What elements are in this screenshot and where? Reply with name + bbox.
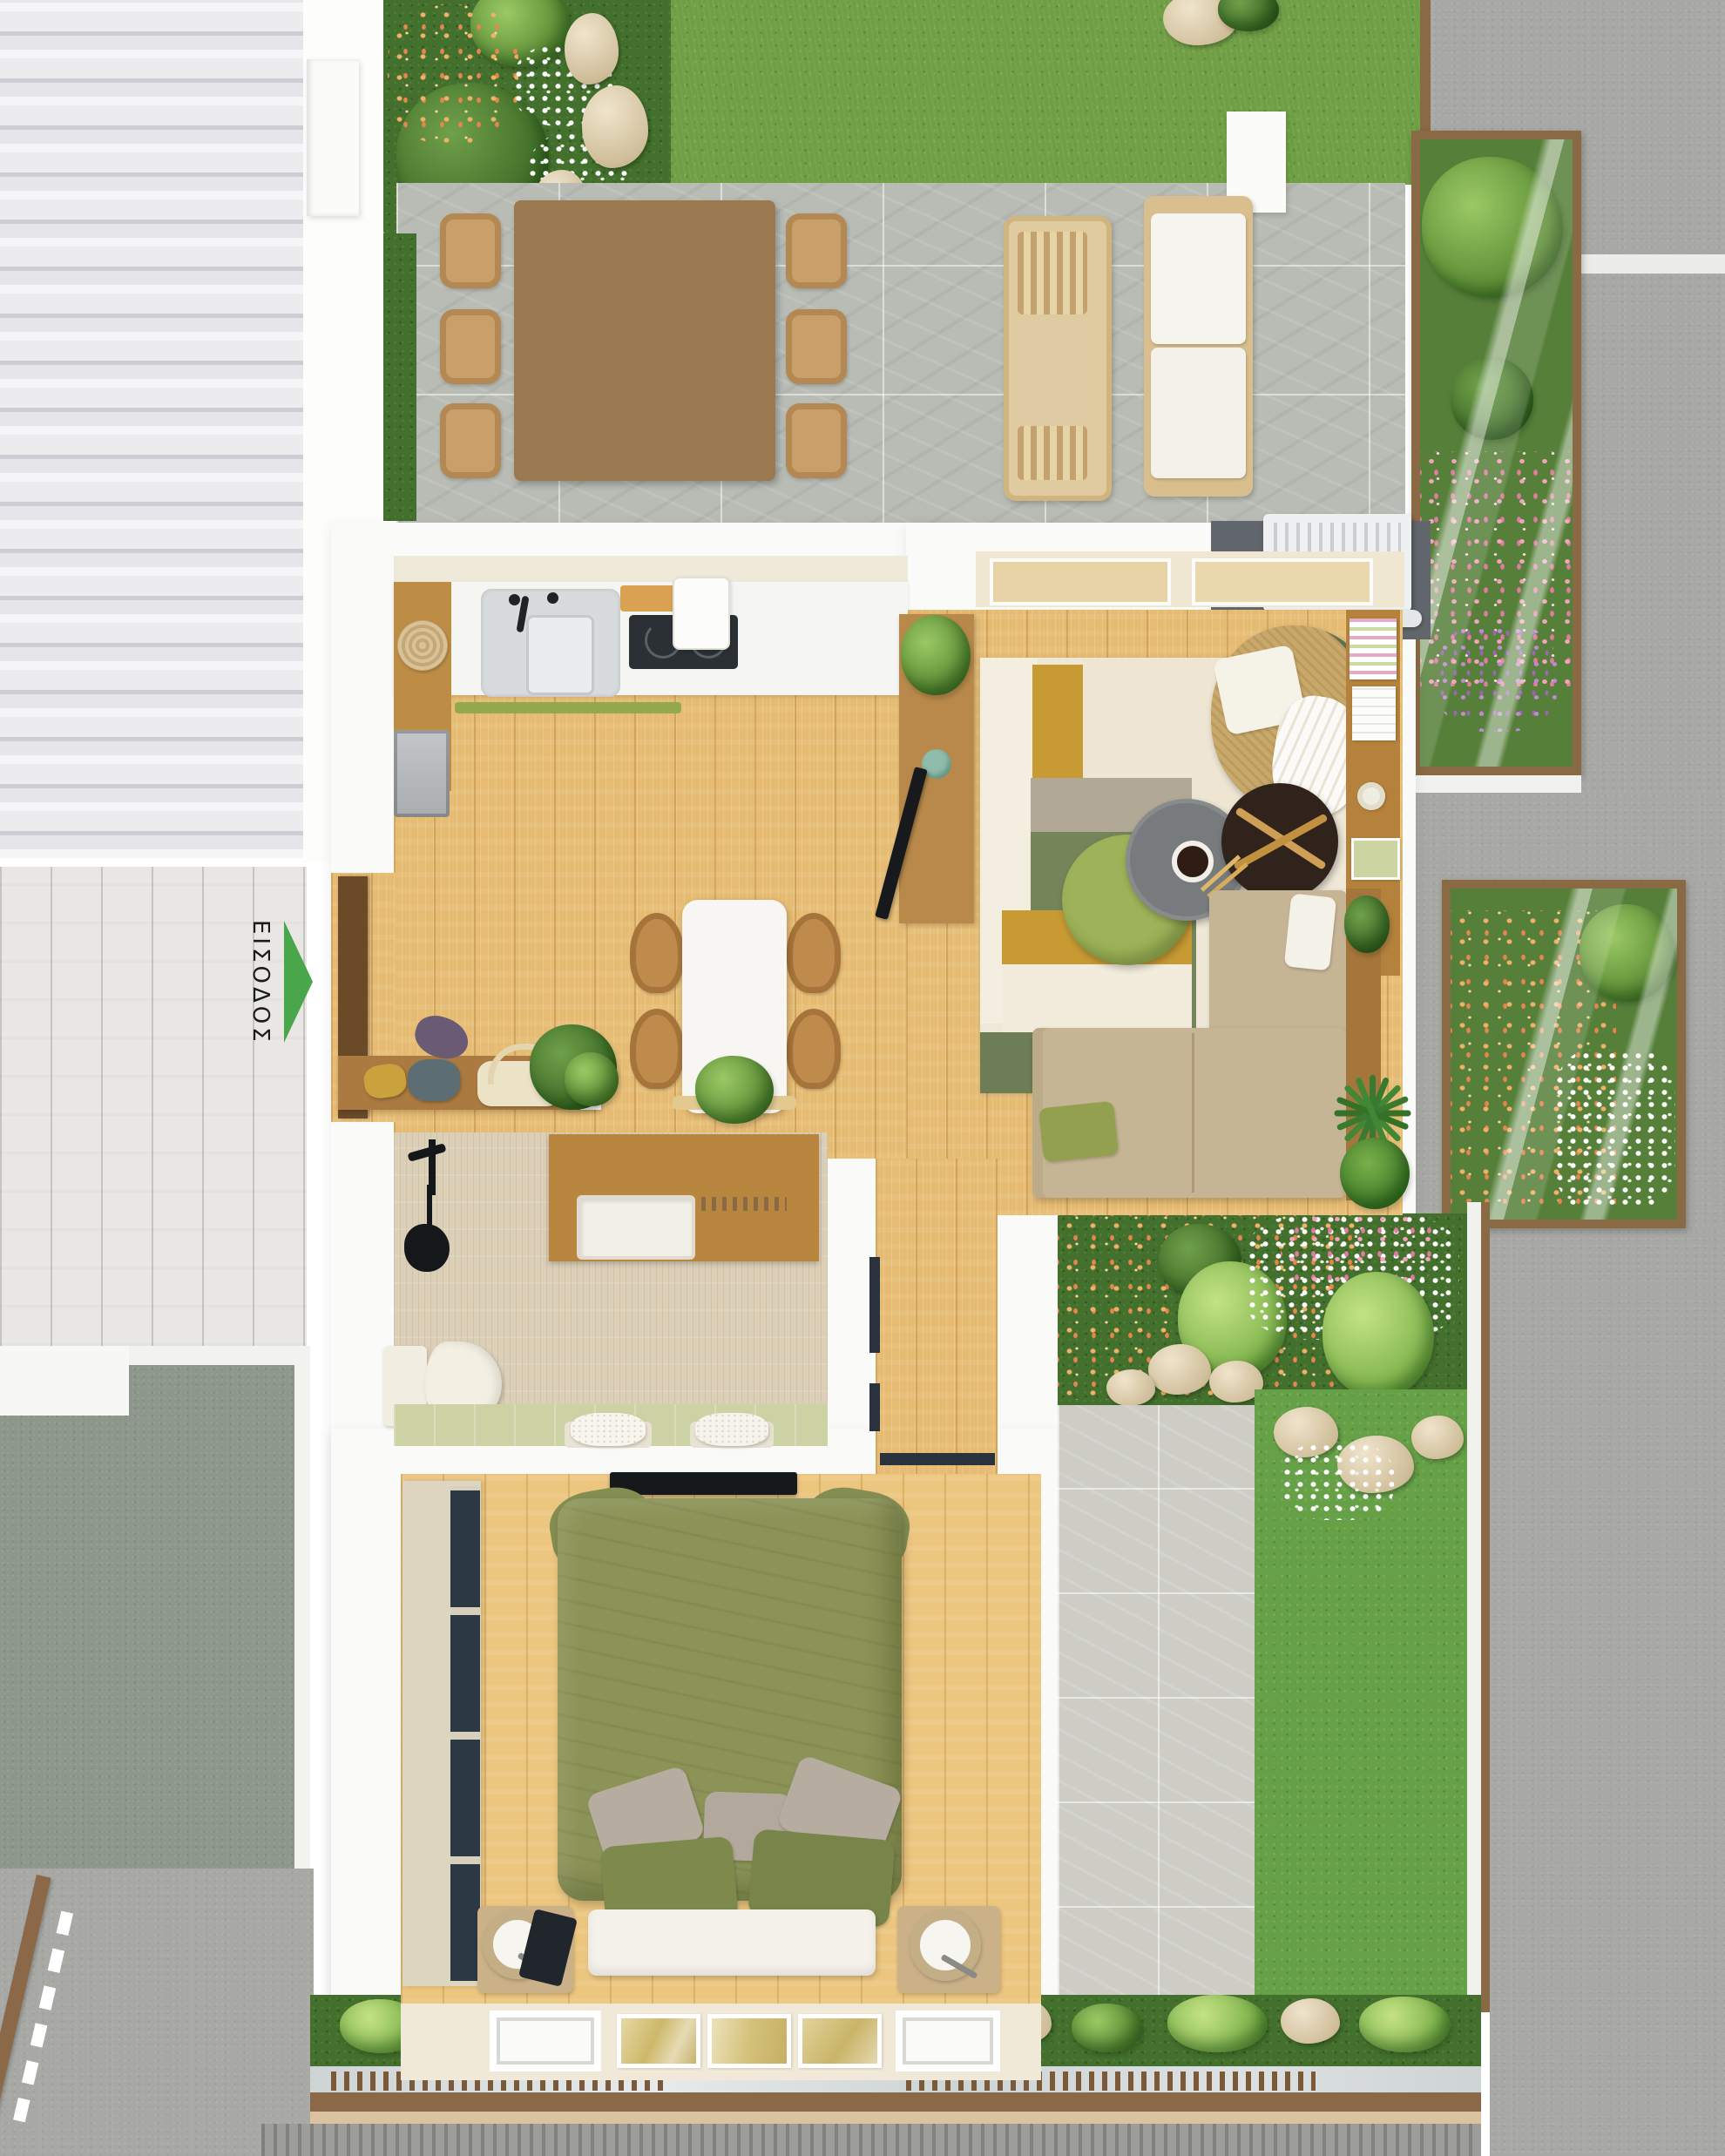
planter-box-east-upper <box>1411 131 1581 775</box>
road-east-mid <box>1410 793 1725 880</box>
outdoor-chair <box>786 309 847 384</box>
faucet-knob <box>547 592 558 604</box>
sidewalk-strip <box>1580 254 1725 274</box>
side-lawn-sage <box>0 1365 294 1869</box>
sofa-seam <box>1192 1033 1194 1193</box>
fence-moss-bush <box>1072 2004 1143 2052</box>
lounger-slats <box>1018 426 1087 480</box>
outdoor-chair <box>440 403 501 478</box>
dining-chair <box>630 913 684 993</box>
outdoor-chair <box>440 213 501 288</box>
garden-rock <box>1148 1344 1211 1395</box>
garden-rock <box>1106 1369 1155 1406</box>
lawn-white-notch <box>0 1346 129 1416</box>
entry-plant-leaves <box>565 1052 619 1106</box>
road-southeast <box>1490 1228 1725 2156</box>
coffee-cup <box>1172 841 1214 882</box>
garden-rock <box>582 85 648 168</box>
rug-patch-gold <box>1032 665 1083 778</box>
fence-leaf-plant <box>1167 1995 1268 2052</box>
south-bush <box>1322 1272 1434 1398</box>
boardwalk-deck <box>261 2124 1481 2156</box>
wardrobe <box>402 1481 481 1986</box>
fence-rock <box>1281 1998 1340 2044</box>
roof-chimney <box>307 59 359 216</box>
lounger-slats <box>1018 232 1087 314</box>
outdoor-sofa <box>1144 196 1253 497</box>
entrance-arrow-icon <box>284 921 313 1043</box>
dining-chair <box>787 913 841 993</box>
rug-patch-white <box>1002 964 1192 1032</box>
planter-glass-cover <box>1451 889 1677 1220</box>
towel <box>571 1413 646 1446</box>
window-frame <box>896 2011 1000 2072</box>
storage-box <box>1351 838 1400 880</box>
south-patio <box>1058 1405 1255 2012</box>
window-frame <box>490 2011 601 2072</box>
floor-hallway <box>876 1159 998 1481</box>
storage-basket <box>397 620 448 671</box>
wardrobe-doors <box>450 1486 480 1981</box>
door-jamb <box>869 1383 880 1431</box>
towel-rail <box>701 1197 787 1211</box>
kitchen-upper-band <box>394 556 908 582</box>
door-threshold <box>880 1453 995 1465</box>
flower-patch-orange <box>388 4 518 144</box>
art-frame <box>707 2014 791 2068</box>
bedroom-tv <box>610 1472 797 1495</box>
sofa-pillow-white <box>1284 894 1336 971</box>
outdoor-chair <box>440 309 501 384</box>
sink-basin <box>526 615 594 695</box>
planter-glass-cover <box>1420 139 1573 767</box>
wash-basin <box>577 1195 695 1260</box>
planter-box-east-lower <box>1442 880 1686 1228</box>
headboard <box>588 1909 876 1976</box>
dining-chair <box>630 1009 684 1089</box>
lounger-cushion <box>1018 319 1087 422</box>
sun-lounger <box>1004 216 1112 501</box>
dining-plant <box>695 1056 774 1124</box>
lawn-edge-sill <box>294 1346 310 1869</box>
art-frame <box>798 2014 882 2068</box>
towel <box>695 1413 768 1446</box>
outdoor-sofa-cushion <box>1151 348 1246 478</box>
fence-rail-wood <box>310 2092 1481 2112</box>
lawn-rock <box>1411 1416 1464 1459</box>
living-window-band <box>976 551 1404 607</box>
outdoor-dining-table <box>514 200 775 481</box>
patio-hedge-strip <box>383 233 416 521</box>
outdoor-sofa-cushion <box>1151 213 1246 344</box>
entrance-label: ΕΙΣΟΔΟΣ <box>247 920 274 1042</box>
faucet-knob <box>509 594 520 605</box>
book-stack-white <box>1352 686 1396 740</box>
bag-backpack <box>408 1059 460 1101</box>
bedroom-south-wall <box>401 2004 1041 2080</box>
window-pane <box>1192 558 1373 605</box>
console-plant <box>901 615 971 695</box>
road-east <box>1580 0 1725 794</box>
bed <box>558 1493 902 1977</box>
book-stack-striped <box>1350 618 1397 679</box>
south-fence-wood <box>1481 1202 1490 2012</box>
fence-wood-bar <box>1420 0 1431 131</box>
floor-plan-render: { "scene": { "entrance": { "label": "ΕΙΣ… <box>0 0 1725 2156</box>
neighbor-roof-tiles <box>0 0 303 858</box>
kitchen-runner-mat <box>455 702 681 713</box>
fence-leaf-plant <box>1359 1997 1451 2052</box>
candle <box>1357 782 1385 810</box>
art-frame <box>617 2014 700 2068</box>
fence-rail-tan <box>310 2112 1481 2124</box>
dining-chair <box>787 1009 841 1089</box>
south-fence-sill <box>1467 1202 1481 2012</box>
oven-appliance <box>394 730 450 817</box>
flower-patch-white <box>1281 1442 1394 1520</box>
planter-sill <box>1411 775 1581 793</box>
fern-plant <box>1344 896 1390 953</box>
outdoor-chair <box>786 403 847 478</box>
range-hood <box>673 577 730 650</box>
outdoor-chair <box>786 213 847 288</box>
garden-rock <box>565 13 619 84</box>
round-leaf-plant <box>1340 1138 1410 1209</box>
shower-head <box>404 1224 450 1272</box>
road-east-column <box>1681 880 1725 1228</box>
door-jamb <box>869 1257 880 1353</box>
window-pane <box>990 558 1171 605</box>
sofa-pillow-green <box>1038 1101 1119 1163</box>
